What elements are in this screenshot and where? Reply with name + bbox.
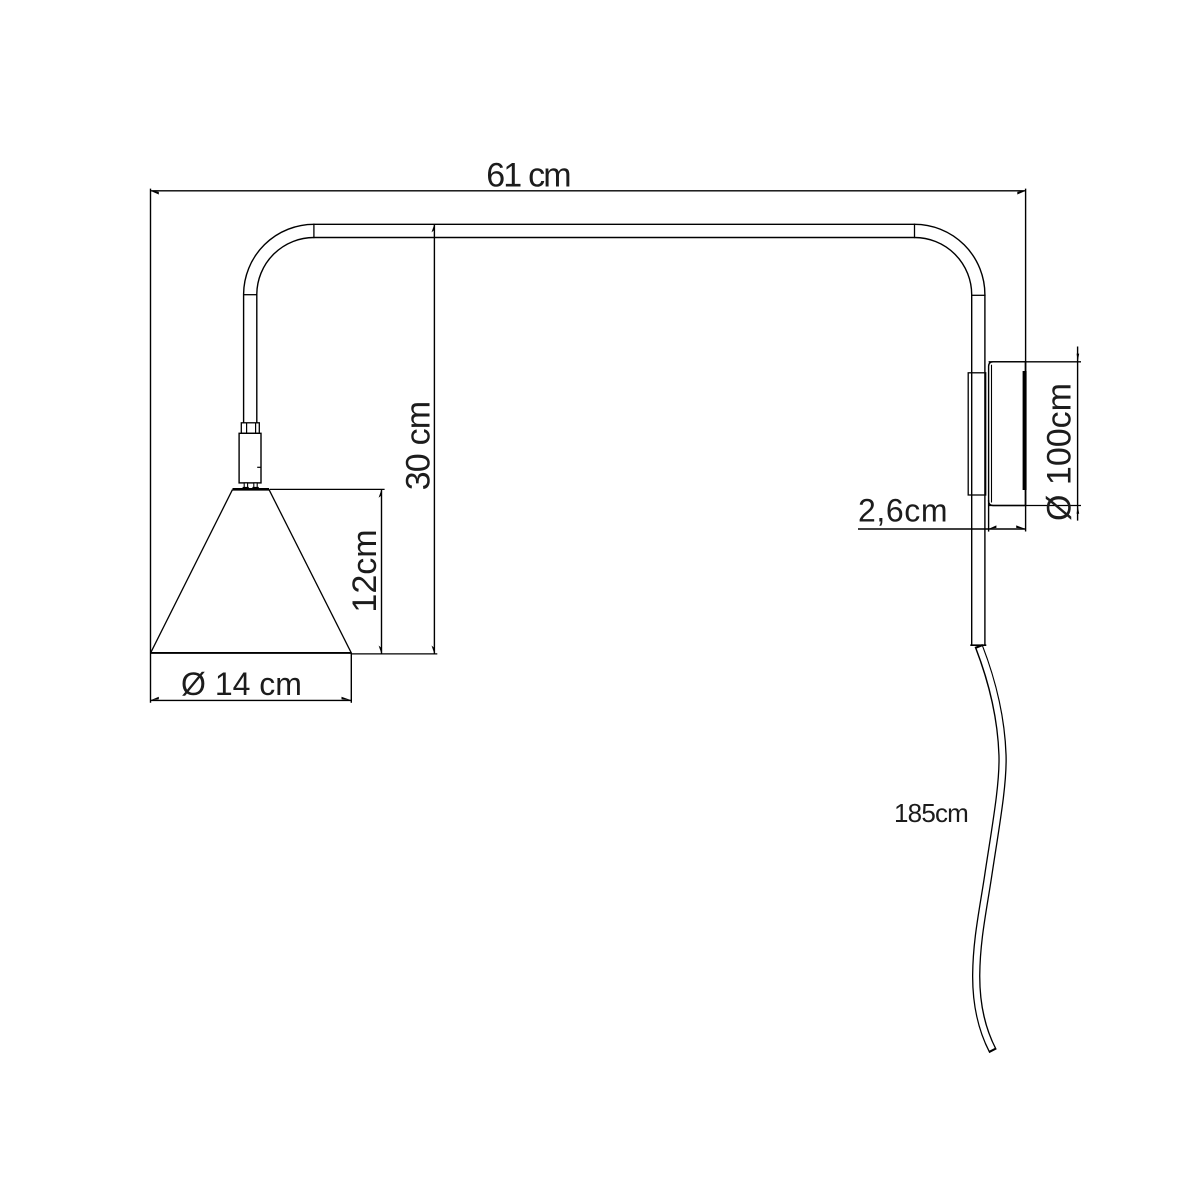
svg-text:185cm: 185cm [894, 798, 968, 828]
svg-text:Ø 14 cm: Ø 14 cm [181, 666, 302, 702]
svg-text:12cm: 12cm [346, 529, 384, 612]
svg-text:61 cm: 61 cm [486, 157, 570, 195]
svg-text:Ø 100cm: Ø 100cm [1041, 383, 1079, 521]
svg-text:2,6cm: 2,6cm [858, 493, 948, 529]
svg-text:30 cm: 30 cm [400, 402, 438, 491]
